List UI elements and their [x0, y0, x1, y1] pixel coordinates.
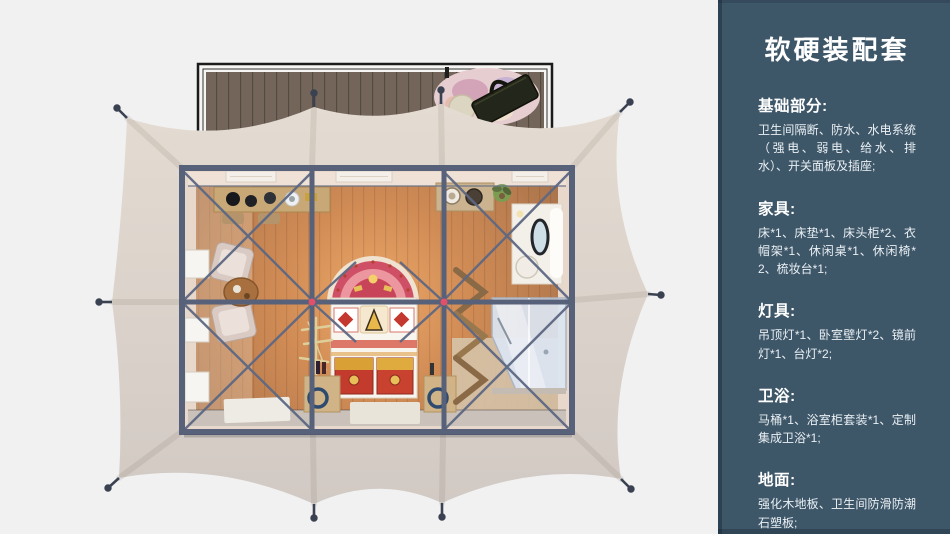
spec-body-lighting: 吊顶灯*1、卧室壁灯*2、镜前灯*1、台灯*2;: [758, 326, 916, 362]
spec-body-basics: 卫生间隔断、防水、水电系统（强电、弱电、给水、排水）、开关面板及插座;: [758, 121, 916, 176]
hat: [226, 192, 240, 206]
spec-section-flooring: 地面: 强化木地板、卫生间防滑防潮石塑板;: [758, 468, 916, 531]
pillows: [334, 306, 414, 333]
spec-heading-furniture: 家具:: [758, 197, 916, 219]
spec-body-flooring: 强化木地板、卫生间防滑防潮石塑板;: [758, 495, 916, 531]
spec-heading-lighting: 灯具:: [758, 299, 916, 321]
mirror-lamp: [517, 211, 524, 218]
spec-section-basics: 基础部分: 卫生间隔断、防水、水电系统（强电、弱电、给水、排水）、开关面板及插座…: [758, 94, 916, 176]
spec-section-lighting: 灯具: 吊顶灯*1、卧室壁灯*2、镜前灯*1、台灯*2;: [758, 299, 916, 362]
spec-heading-flooring: 地面:: [758, 468, 916, 490]
vanity-mirror: [532, 220, 548, 254]
sidebar-title: 软硬装配套: [758, 30, 916, 67]
spec-heading-bathroom: 卫浴:: [758, 384, 916, 406]
deck-hook: [445, 67, 449, 78]
room: [182, 168, 572, 436]
floorplan-stage: [0, 0, 718, 534]
spec-section-furniture: 家具: 床*1、床垫*1、床头柜*2、衣帽架*1、休闲桌*1、休闲椅*2、梳妆台…: [758, 197, 916, 279]
vanity: [512, 204, 563, 284]
frame-joint: [441, 299, 448, 306]
spec-heading-basics: 基础部分:: [758, 94, 916, 116]
page: 软硬装配套 基础部分: 卫生间隔断、防水、水电系统（强电、弱电、给水、排水）、开…: [0, 0, 950, 534]
spec-sidebar: 软硬装配套 基础部分: 卫生间隔断、防水、水电系统（强电、弱电、给水、排水）、开…: [718, 0, 950, 534]
spec-body-furniture: 床*1、床垫*1、床头柜*2、衣帽架*1、休闲桌*1、休闲椅*2、梳妆台*1;: [758, 224, 916, 279]
hat: [245, 195, 257, 207]
drain: [544, 350, 549, 355]
blanket-stripe: [331, 340, 417, 348]
tent-floorplan: [0, 0, 718, 534]
kettle: [264, 192, 276, 204]
vanity-stool: [516, 256, 538, 278]
frame-joint: [309, 299, 316, 306]
spec-body-bathroom: 马桶*1、浴室柜套装*1、定制集成卫浴*1;: [758, 411, 916, 447]
spec-section-bathroom: 卫浴: 马桶*1、浴室柜套装*1、定制集成卫浴*1;: [758, 384, 916, 447]
